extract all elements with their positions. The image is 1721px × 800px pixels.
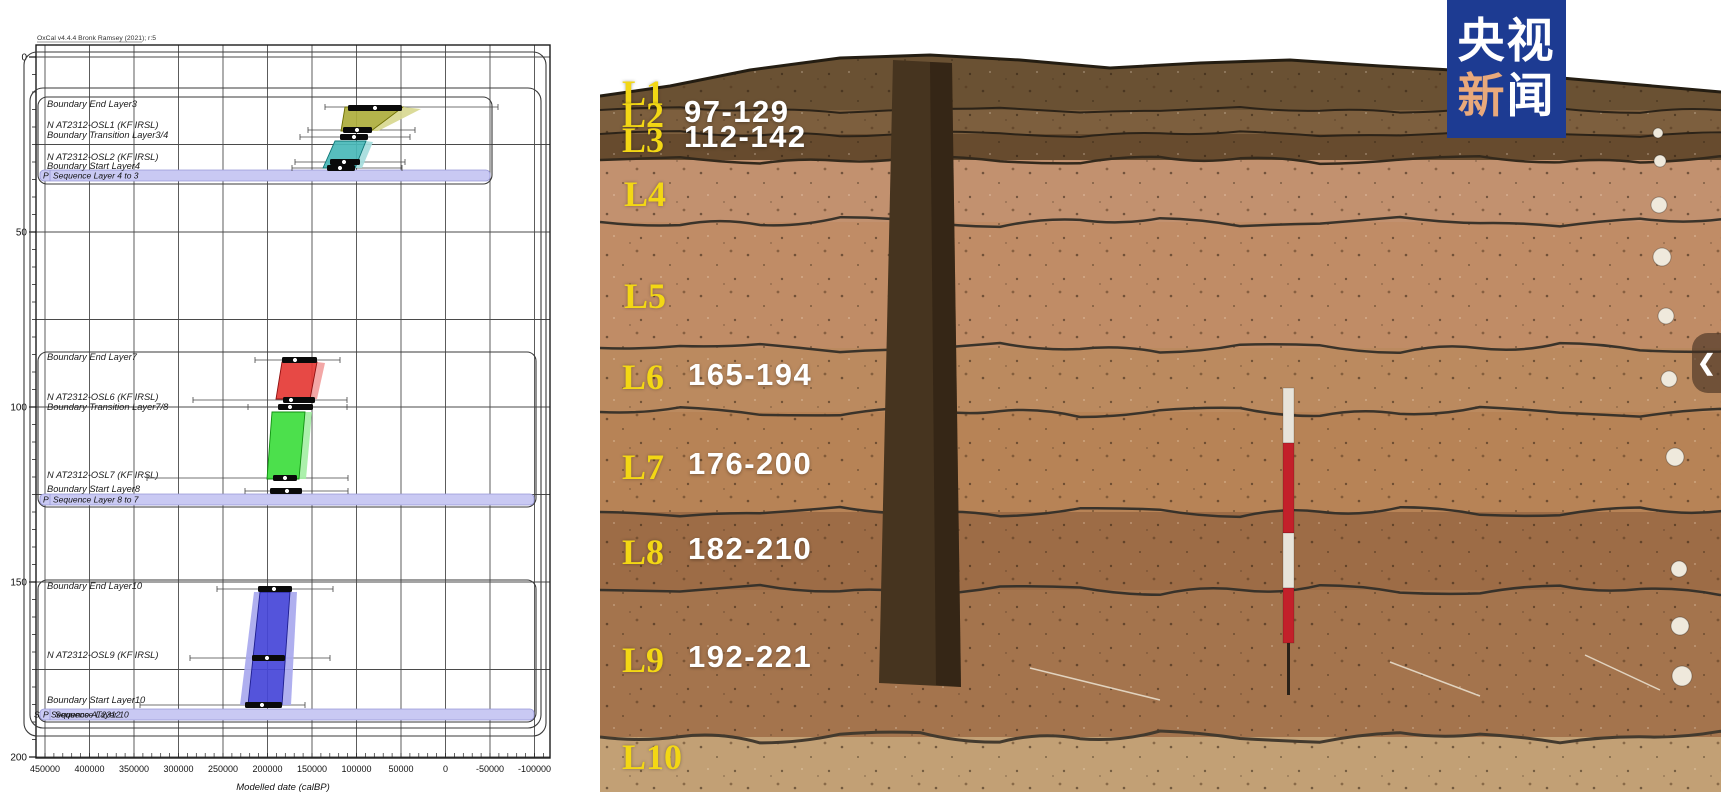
layer-label-l10: L10 <box>622 736 682 778</box>
sample-marker-dot <box>1651 197 1667 213</box>
svg-text:Modelled date (calBP): Modelled date (calBP) <box>236 782 329 793</box>
oxcal-age-model-panel: 0501001502004500004000003500003000002500… <box>0 0 600 800</box>
cctv-news-logo: 央视 新闻 <box>1447 0 1566 138</box>
layer-label-l9: L9 <box>622 639 664 681</box>
svg-text:Sequence Layer 8 to 7: Sequence Layer 8 to 7 <box>53 495 139 505</box>
logo-text-yangshi: 央视 <box>1458 14 1556 67</box>
svg-text:Sequence Layer 4 to 3: Sequence Layer 4 to 3 <box>53 171 139 181</box>
sample-marker-dot <box>1654 155 1666 167</box>
svg-text:200000: 200000 <box>252 764 282 774</box>
svg-text:150000: 150000 <box>297 764 327 774</box>
model-element-label: N AT2312-OSL7 (KF IRSL) <box>47 470 158 480</box>
svg-text:Sequence Layer 10: Sequence Layer 10 <box>55 710 129 720</box>
sample-marker-dot <box>1661 371 1677 387</box>
model-element-label: Boundary End Layer3 <box>47 99 138 109</box>
svg-text:P: P <box>43 710 49 720</box>
model-element-label: Boundary Start Layer8 <box>47 484 141 494</box>
distribution-osl2-teal <box>292 141 405 171</box>
logo-line-1: 央视 <box>1458 15 1556 68</box>
model-element-label: Boundary Start Layer10 <box>47 695 146 705</box>
svg-text:100: 100 <box>10 403 27 414</box>
logo-line-2: 新闻 <box>1458 70 1556 123</box>
layer-label-l8: L8 <box>622 531 664 573</box>
distribution-transition-3-4 <box>300 134 410 140</box>
model-element-label: Boundary Start Layer4 <box>47 161 140 171</box>
sample-marker-dot <box>1658 308 1674 324</box>
chart-content: 0501001502004500004000003500003000002500… <box>10 35 551 793</box>
sample-marker-dot <box>1671 561 1687 577</box>
model-element-label: Boundary Transition Layer7/8 <box>47 402 169 412</box>
svg-text:50000: 50000 <box>388 764 413 774</box>
model-element-label: Boundary End Layer10 <box>47 581 143 591</box>
figure-root: 0501001502004500004000003500003000002500… <box>0 0 1721 800</box>
layer-age-range-l6: 165-194 <box>688 357 812 393</box>
sample-marker-dot <box>1653 248 1671 266</box>
model-element-label: N AT2312-OSL9 (KF IRSL) <box>47 650 158 660</box>
layer-age-range-l7: 176-200 <box>688 446 812 482</box>
sample-marker-dot <box>1672 666 1692 686</box>
logo-text-wen: 闻 <box>1507 69 1556 122</box>
model-element-label: N AT2312-OSL6 (KF IRSL) <box>47 392 158 402</box>
distribution-layer10-blue <box>140 586 333 708</box>
svg-text:S: S <box>34 710 40 720</box>
logo-text-xin: 新 <box>1458 69 1507 122</box>
sample-marker-dot <box>1671 617 1689 635</box>
svg-text:250000: 250000 <box>208 764 238 774</box>
layer-label-l6: L6 <box>622 356 664 398</box>
layer-age-range-l3: 112-142 <box>684 119 807 155</box>
svg-text:0: 0 <box>443 764 448 774</box>
layer-label-l5: L5 <box>624 275 666 317</box>
model-element-label: Boundary End Layer7 <box>47 352 138 362</box>
chevron-left-icon: ❮ <box>1697 350 1715 376</box>
model-element-label: N AT2312-OSL1 (KF IRSL) <box>47 120 158 130</box>
svg-text:OxCal v4.4.4 Bronk Ramsey (202: OxCal v4.4.4 Bronk Ramsey (2021); r:5 <box>37 35 156 42</box>
svg-text:200: 200 <box>10 753 27 764</box>
svg-text:100000: 100000 <box>341 764 371 774</box>
sample-marker-dot <box>1666 448 1684 466</box>
oxcal-chart: 0501001502004500004000003500003000002500… <box>0 0 600 800</box>
layer-label-l4: L4 <box>624 173 666 215</box>
layer-age-range-l9: 192-221 <box>688 639 812 675</box>
svg-text:300000: 300000 <box>163 764 193 774</box>
sample-marker-dot <box>1653 128 1663 138</box>
distribution-osl7-green <box>147 412 348 494</box>
distribution-boundary-end-layer3-olive <box>308 104 498 133</box>
svg-text:350000: 350000 <box>119 764 149 774</box>
svg-text:P: P <box>43 171 49 181</box>
svg-text:400000: 400000 <box>74 764 104 774</box>
layer-age-range-l8: 182-210 <box>688 531 812 567</box>
svg-text:P: P <box>43 495 49 505</box>
svg-text:150: 150 <box>10 578 27 589</box>
carousel-prev-button[interactable]: ❮ <box>1692 333 1721 393</box>
layer-label-l7: L7 <box>622 446 664 488</box>
svg-text:50: 50 <box>16 228 28 239</box>
model-element-label: Boundary Transition Layer3/4 <box>47 130 168 140</box>
layer-label-l3: L3 <box>622 119 664 161</box>
distribution-end-layer7-red <box>193 357 347 410</box>
svg-text:-100000: -100000 <box>518 764 551 774</box>
svg-text:-50000: -50000 <box>476 764 504 774</box>
svg-text:450000: 450000 <box>30 764 60 774</box>
